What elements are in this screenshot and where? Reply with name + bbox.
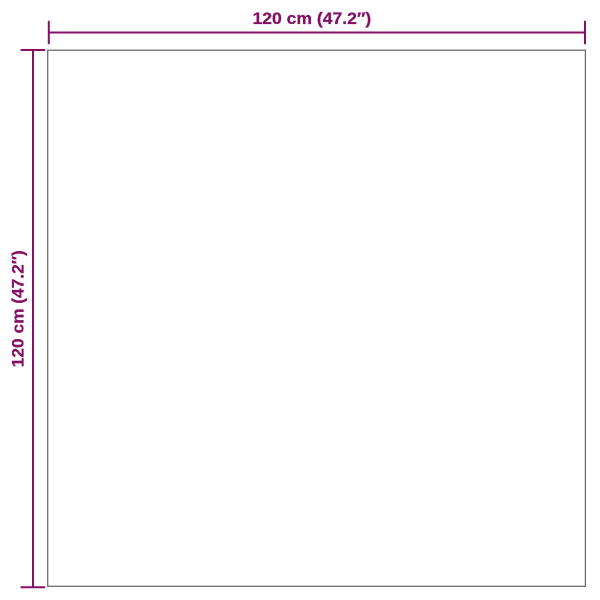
svg-text:120 cm (47.2″): 120 cm (47.2″) <box>9 250 28 367</box>
svg-text:120 cm (47.2″): 120 cm (47.2″) <box>253 9 372 28</box>
